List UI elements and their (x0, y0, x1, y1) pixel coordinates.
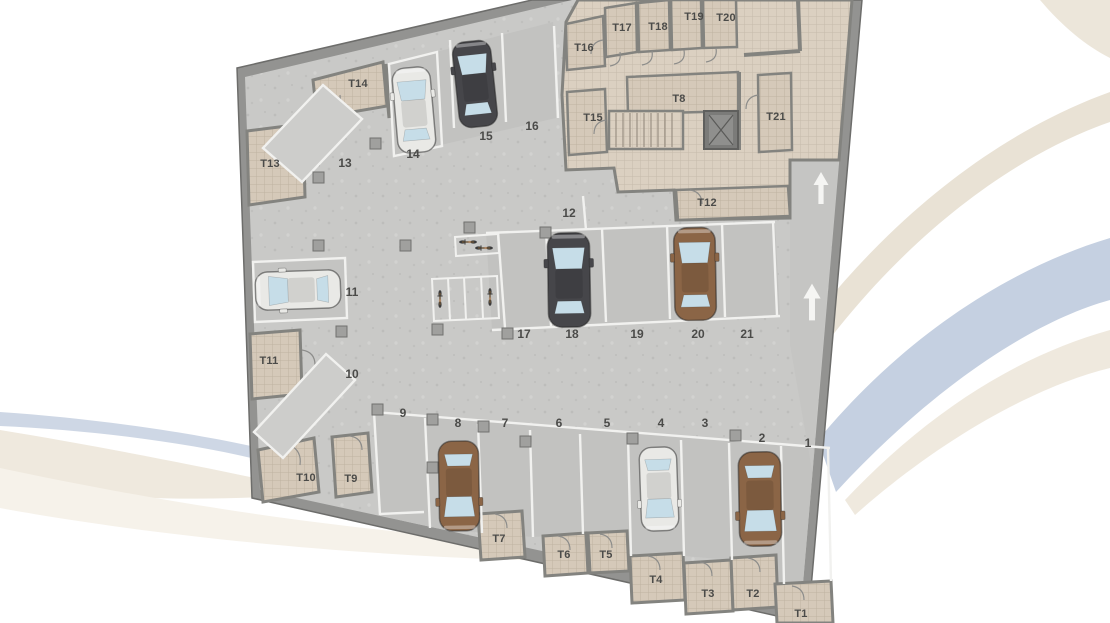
room-T20 (703, 0, 737, 48)
car-icon-spot-4 (636, 446, 683, 531)
room-label-T12: T12 (697, 197, 717, 209)
spot-label-8: 8 (455, 416, 462, 430)
room-label-T14: T14 (348, 78, 368, 90)
floor-plan-canvas: 1 2 3 4 5 6 7 8 9 10 11 12 13 14 15 16 1… (0, 0, 1110, 623)
room-label-T4: T4 (649, 574, 663, 586)
room-label-T20: T20 (716, 12, 736, 24)
spot-label-13: 13 (338, 156, 352, 170)
room-label-T18: T18 (648, 21, 668, 33)
car-icon-spot-2 (734, 451, 785, 546)
spot-label-16: 16 (525, 119, 539, 133)
parking-floor-plan-page: 1 2 3 4 5 6 7 8 9 10 11 12 13 14 15 16 1… (0, 0, 1110, 623)
room-label-T9: T9 (344, 473, 357, 485)
room-label-T19: T19 (684, 11, 704, 23)
room-label-T5: T5 (599, 549, 612, 561)
spot-label-7: 7 (502, 416, 509, 430)
spot-label-21: 21 (740, 327, 754, 341)
spot-label-6: 6 (556, 416, 563, 430)
room-label-T21: T21 (766, 111, 786, 123)
room-label-T10: T10 (296, 472, 316, 484)
spot-label-12: 12 (562, 206, 576, 220)
room-label-T11: T11 (260, 355, 279, 367)
car-icon-spot-11 (255, 266, 342, 314)
room-label-T15: T15 (583, 112, 603, 124)
spot-label-1: 1 (805, 436, 812, 450)
spot-label-10: 10 (345, 367, 359, 381)
spot-label-5: 5 (604, 416, 611, 430)
room-label-T2: T2 (746, 588, 759, 600)
room-label-T7: T7 (492, 533, 505, 545)
spot-label-19: 19 (630, 327, 644, 341)
spot-label-4: 4 (658, 416, 665, 430)
room-label-T16: T16 (574, 42, 594, 54)
car-icon-spot-18 (543, 232, 594, 327)
room-label-T1: T1 (794, 608, 807, 620)
spot-label-18: 18 (565, 327, 579, 341)
room-label-T17: T17 (612, 22, 632, 34)
room-label-T3: T3 (701, 588, 714, 600)
room-T2 (731, 555, 778, 610)
room-label-T13: T13 (260, 158, 280, 170)
spot-label-14: 14 (406, 147, 420, 161)
spot-label-11: 11 (346, 285, 359, 299)
room-T19 (671, 0, 702, 50)
spot-label-9: 9 (400, 406, 407, 420)
room-T3 (684, 560, 733, 614)
spot-label-17: 17 (517, 327, 531, 341)
room-label-T8: T8 (672, 93, 685, 105)
spot-label-2: 2 (759, 431, 766, 445)
room-T9 (332, 433, 372, 497)
spot-label-3: 3 (702, 416, 709, 430)
elevator (704, 111, 738, 149)
spot-label-20: 20 (691, 327, 705, 341)
stairs (609, 111, 683, 149)
car-icon-spot-20 (670, 227, 720, 321)
car-icon-spot-8 (435, 441, 484, 531)
spot-label-15: 15 (479, 129, 493, 143)
room-label-T6: T6 (557, 549, 570, 561)
